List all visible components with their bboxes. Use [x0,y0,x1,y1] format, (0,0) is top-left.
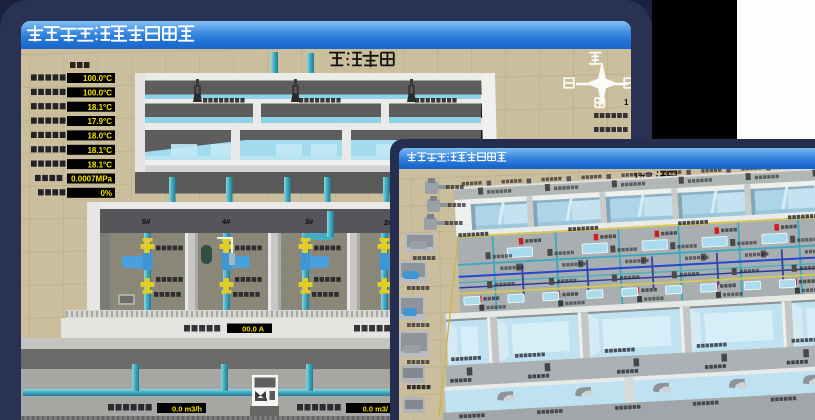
svg-text:4#: 4# [222,217,231,226]
svg-text:18.0°C: 18.0°C [87,132,112,141]
svg-text:0.0 m3/h: 0.0 m3/h [172,405,202,414]
svg-text:0.0007MPa: 0.0007MPa [71,175,112,184]
svg-text:0%: 0% [100,189,112,198]
svg-text:1: 1 [624,98,629,107]
svg-text:0.0 m3/: 0.0 m3/ [363,405,389,414]
svg-text:5#: 5# [142,217,151,226]
svg-text:100.0°C: 100.0°C [83,89,112,98]
svg-text:18.1°C: 18.1°C [87,146,112,155]
svg-text:18.1°C: 18.1°C [87,160,112,169]
svg-text:00.0 A: 00.0 A [242,325,264,334]
svg-text:18.1°C: 18.1°C [87,103,112,112]
svg-text:17.9°C: 17.9°C [87,117,112,126]
svg-text:3#: 3# [305,217,314,226]
svg-text:100.0°C: 100.0°C [83,74,112,83]
